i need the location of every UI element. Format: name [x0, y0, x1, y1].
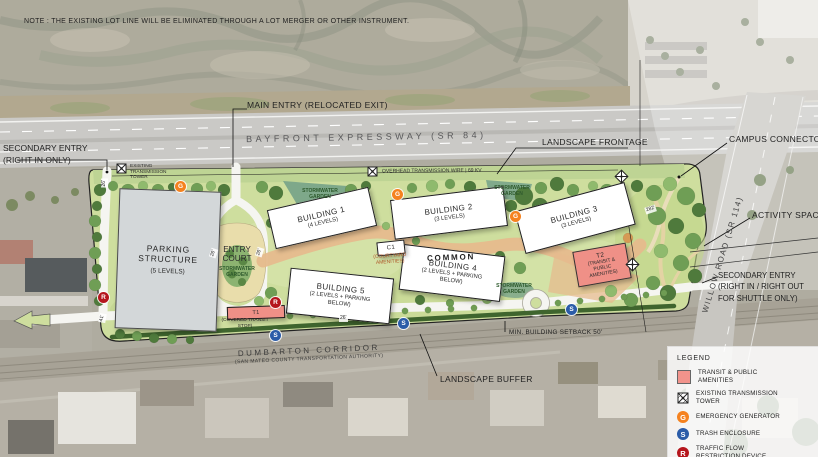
building-t1-label: T1	[252, 309, 259, 315]
entry-court-sg: STORMWATER GARDEN	[209, 266, 265, 278]
building-t1-sub: (COVERED TRANSIT STOP)	[219, 318, 271, 330]
sg2-line2: GARDEN	[489, 191, 535, 197]
secondary-entry-left-label: SECONDARY ENTRY (RIGHT IN ONLY)	[3, 142, 88, 167]
secondary-entry-left-line2: (RIGHT IN ONLY)	[3, 154, 88, 166]
parking-structure-label2: STRUCTURE	[138, 253, 198, 265]
campus-connector-label: CAMPUS CONNECTOR	[729, 134, 818, 144]
legend-item-label: EXISTING TRANSMISSION TOWER	[696, 390, 790, 406]
legend-item-tower: EXISTING TRANSMISSION TOWER	[677, 390, 811, 406]
main-entry-label: MAIN ENTRY (RELOCATED EXIT)	[247, 100, 388, 110]
restriction-marker-icon: R	[270, 297, 281, 308]
generator-marker-icon: G	[392, 189, 403, 200]
parking-structure-sub: (5 LEVELS)	[150, 268, 185, 277]
transmission-tower-icon	[367, 166, 378, 177]
parking-structure: PARKING STRUCTURE (5 LEVELS)	[115, 188, 222, 331]
min-setback-label: MIN. BUILDING SETBACK 50'	[509, 329, 602, 336]
generator-legend-icon: G	[677, 411, 689, 423]
generator-marker-icon: G	[175, 181, 186, 192]
secondary-entry-right-label: SECONDARY ENTRY (RIGHT IN / RIGHT OUT FO…	[718, 270, 804, 304]
legend-item-label: EMERGENCY GENERATOR	[696, 413, 790, 421]
building-c1-label: C1	[386, 245, 395, 252]
legend-item-generator: G EMERGENCY GENERATOR	[677, 411, 811, 423]
existing-tower-label: EXISTING TRANSMISSION TOWER	[130, 164, 174, 181]
secondary-entry-right-line3: FOR SHUTTLE ONLY)	[718, 293, 804, 304]
legend-item-transit: TRANSIT & PUBLIC AMENITIES	[677, 369, 811, 385]
restriction-legend-icon: R	[677, 447, 689, 457]
stormwater-garden-label-1: STORMWATER GARDEN	[297, 188, 343, 200]
secondary-entry-right-line2: (RIGHT IN / RIGHT OUT	[718, 281, 804, 292]
note-text: NOTE : THE EXISTING LOT LINE WILL BE ELI…	[24, 18, 409, 25]
landscape-buffer-label: LANDSCAPE BUFFER	[440, 374, 533, 384]
landscape-frontage-label: LANDSCAPE FRONTAGE	[542, 137, 648, 147]
transmission-tower-icon	[116, 163, 127, 174]
restriction-marker-icon: R	[98, 292, 109, 303]
generator-marker-icon: G	[510, 211, 521, 222]
legend-item-trash: S TRASH ENCLOSURE	[677, 428, 811, 440]
trash-marker-icon: S	[566, 304, 577, 315]
legend-item-restriction: R TRAFFIC FLOW RESTRICTION DEVICE	[677, 445, 811, 457]
legend-item-label: TRANSIT & PUBLIC AMENITIES	[698, 369, 792, 385]
sg1-line2: GARDEN	[297, 194, 343, 200]
dimension-26-a: 26'	[101, 179, 108, 188]
dimension-26-d: 26'	[339, 315, 348, 322]
legend-item-label: TRAFFIC FLOW RESTRICTION DEVICE	[696, 445, 790, 457]
transit-swatch-icon	[677, 370, 691, 384]
legend: LEGEND TRANSIT & PUBLIC AMENITIES EXISTI…	[667, 346, 818, 457]
trash-marker-icon: S	[270, 330, 281, 341]
activity-space-label: ACTIVITY SPACE	[752, 210, 818, 220]
site-plan-map: PARKING STRUCTURE (5 LEVELS) BUILDING 1 …	[0, 0, 818, 457]
left-neighborhood	[0, 168, 92, 380]
building-t2-sub: (TRANSIT & PUBLIC AMENITIES)	[580, 257, 626, 282]
stormwater-garden-label-2: STORMWATER GARDEN	[489, 185, 535, 197]
trash-legend-icon: S	[677, 428, 689, 440]
legend-item-label: TRASH ENCLOSURE	[696, 430, 790, 438]
common-label: COMMON	[427, 252, 475, 263]
legend-title: LEGEND	[677, 355, 811, 362]
secondary-entry-right-line1: SECONDARY ENTRY	[718, 270, 804, 281]
trash-marker-icon: S	[398, 318, 409, 329]
overhead-wire-label: OVERHEAD TRANSMISSION WIRE | 69 KV	[382, 168, 482, 175]
stormwater-garden-label-3: STORMWATER GARDEN	[491, 283, 537, 295]
sg3-line2: GARDEN	[491, 289, 537, 295]
secondary-entry-left-line1: SECONDARY ENTRY	[3, 142, 88, 154]
transmission-tower-icon	[677, 392, 689, 404]
entry-court-sg-line2: GARDEN	[209, 272, 265, 278]
